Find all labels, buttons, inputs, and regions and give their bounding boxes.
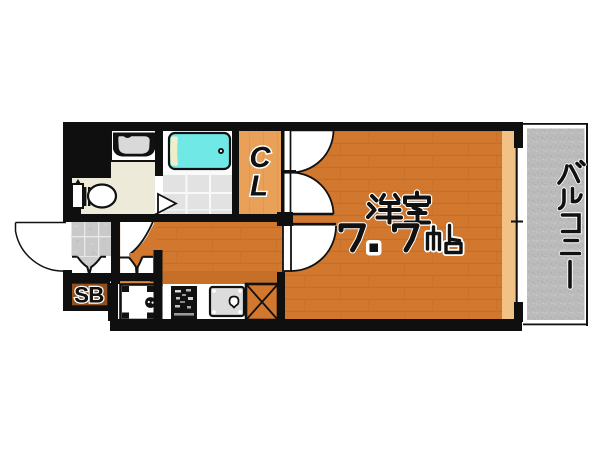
svg-text:L: L (250, 171, 268, 203)
svg-text:SB: SB (74, 283, 104, 308)
svg-text:C: C (250, 142, 272, 174)
